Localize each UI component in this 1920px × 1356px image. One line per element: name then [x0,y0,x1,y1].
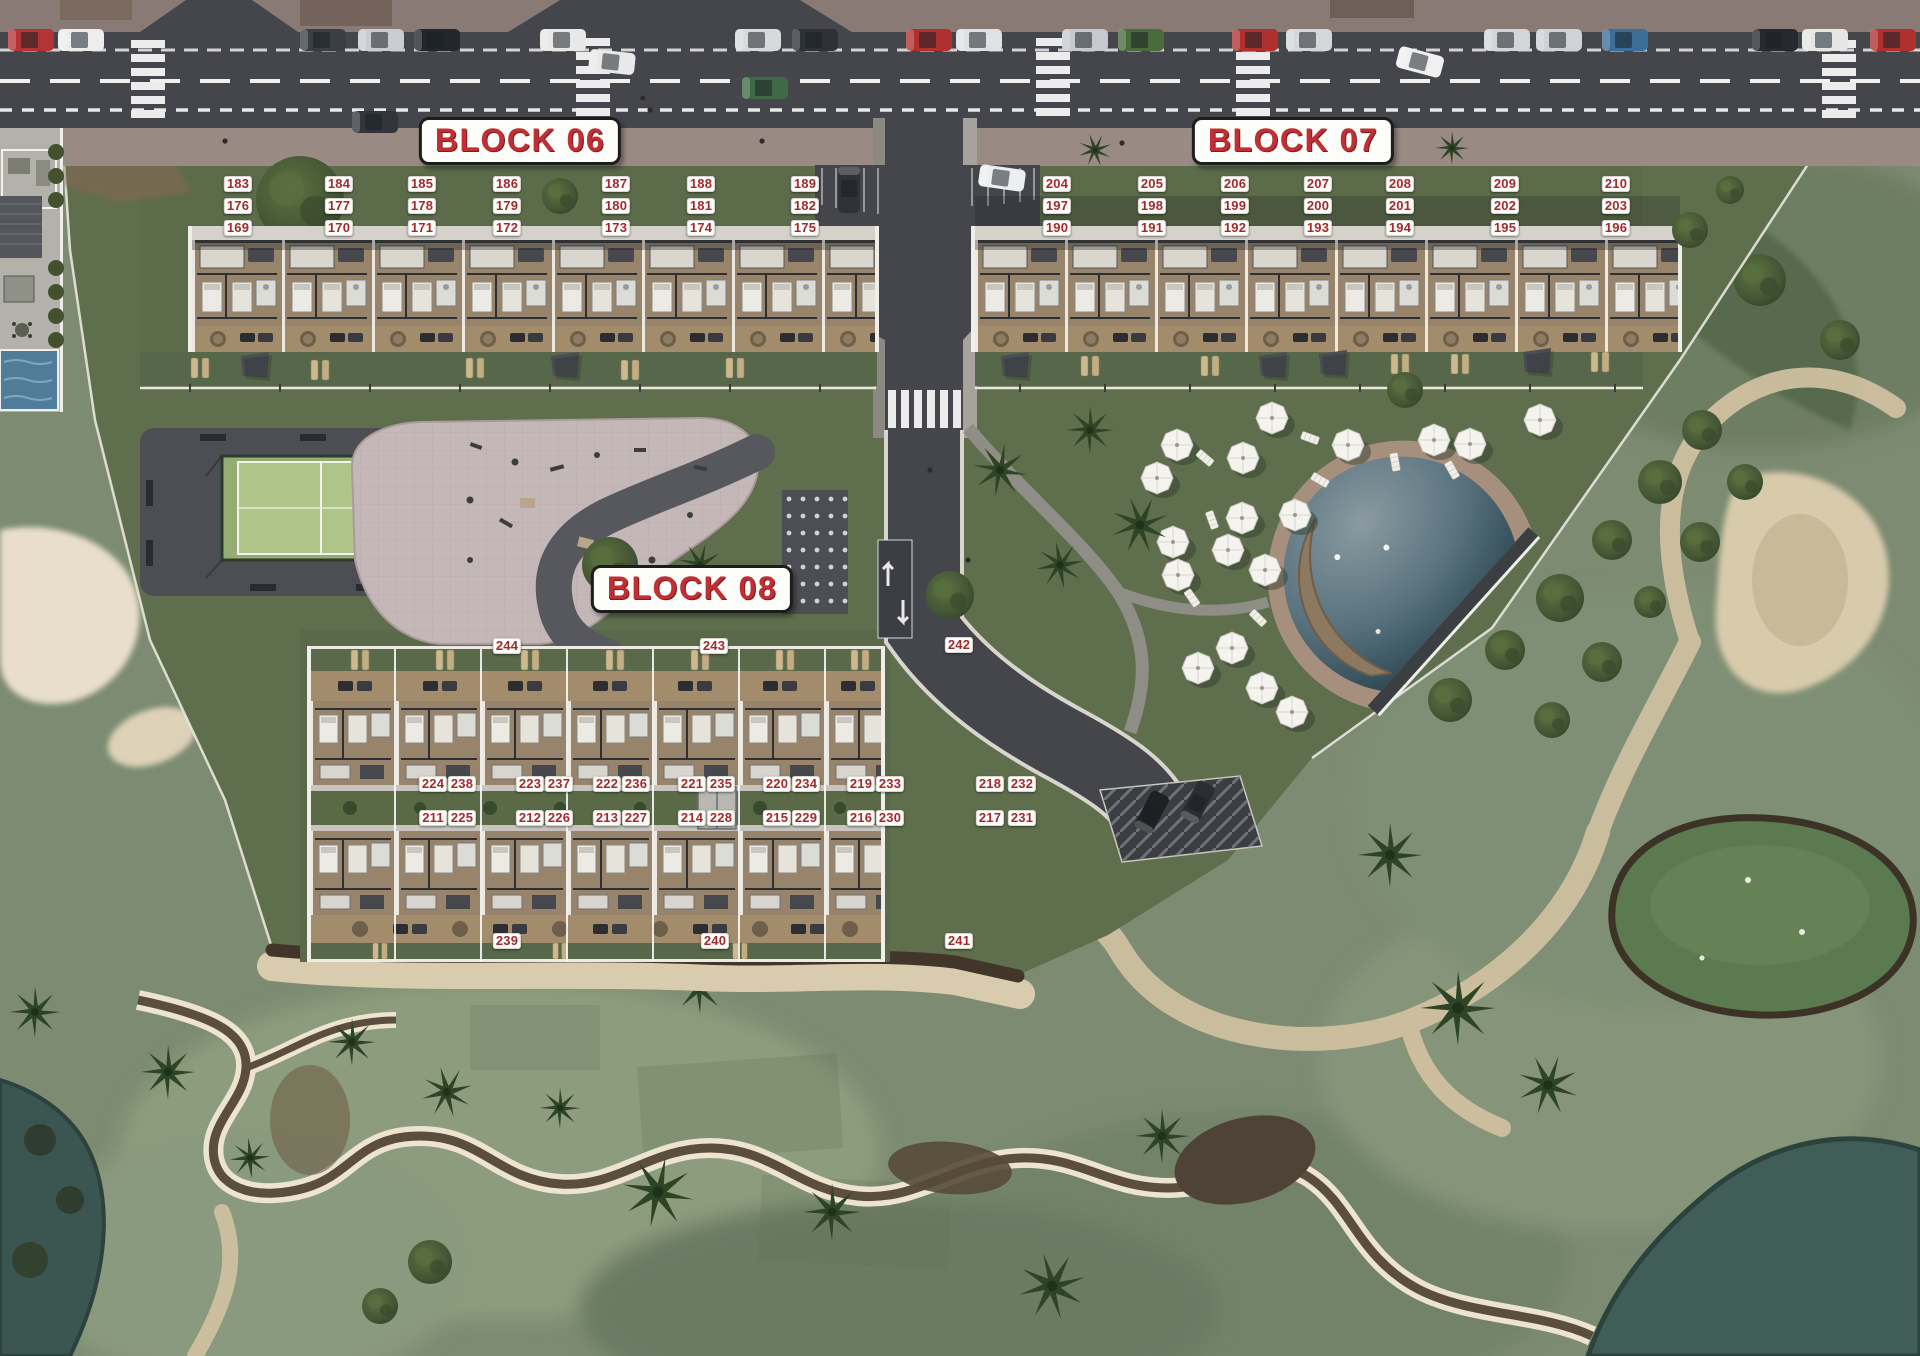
block-label-06: BLOCK 06 [419,117,621,165]
unit-badge-193[interactable]: 193 [1304,220,1332,236]
unit-badge-181[interactable]: 181 [687,198,715,214]
unit-badge-227[interactable]: 227 [622,810,650,826]
unit-badge-196[interactable]: 196 [1602,220,1630,236]
unit-badge-189[interactable]: 189 [791,176,819,192]
unit-badge-187[interactable]: 187 [602,176,630,192]
unit-badge-209[interactable]: 209 [1491,176,1519,192]
unit-badge-182[interactable]: 182 [791,198,819,214]
unit-badge-180[interactable]: 180 [602,198,630,214]
unit-badge-175[interactable]: 175 [791,220,819,236]
unit-badge-206[interactable]: 206 [1221,176,1249,192]
unit-badge-218[interactable]: 218 [976,776,1004,792]
unit-badge-228[interactable]: 228 [707,810,735,826]
unit-badge-203[interactable]: 203 [1602,198,1630,214]
unit-badge-234[interactable]: 234 [792,776,820,792]
unit-badge-184[interactable]: 184 [325,176,353,192]
unit-badge-229[interactable]: 229 [792,810,820,826]
unit-badge-224[interactable]: 224 [419,776,447,792]
unit-badge-208[interactable]: 208 [1386,176,1414,192]
unit-badge-197[interactable]: 197 [1043,198,1071,214]
unit-badge-171[interactable]: 171 [408,220,436,236]
unit-badge-235[interactable]: 235 [707,776,735,792]
unit-badge-213[interactable]: 213 [593,810,621,826]
unit-badge-192[interactable]: 192 [1221,220,1249,236]
unit-badge-210[interactable]: 210 [1602,176,1630,192]
unit-badge-169[interactable]: 169 [224,220,252,236]
unit-badge-223[interactable]: 223 [516,776,544,792]
unit-badge-205[interactable]: 205 [1138,176,1166,192]
unit-badge-231[interactable]: 231 [1008,810,1036,826]
unit-badge-198[interactable]: 198 [1138,198,1166,214]
unit-badge-186[interactable]: 186 [493,176,521,192]
unit-badge-176[interactable]: 176 [224,198,252,214]
unit-badge-236[interactable]: 236 [622,776,650,792]
unit-badge-217[interactable]: 217 [976,810,1004,826]
unit-badge-172[interactable]: 172 [493,220,521,236]
unit-badge-188[interactable]: 188 [687,176,715,192]
unit-badge-240[interactable]: 240 [701,933,729,949]
unit-badge-244[interactable]: 244 [493,638,521,654]
block-label-07: BLOCK 07 [1192,117,1394,165]
unit-badge-179[interactable]: 179 [493,198,521,214]
unit-badge-219[interactable]: 219 [847,776,875,792]
unit-badge-243[interactable]: 243 [700,638,728,654]
unit-badge-230[interactable]: 230 [876,810,904,826]
unit-badge-174[interactable]: 174 [687,220,715,236]
left-amenity-area [0,128,64,412]
unit-badge-191[interactable]: 191 [1138,220,1166,236]
unit-badge-211[interactable]: 211 [419,810,447,826]
unit-badge-215[interactable]: 215 [763,810,791,826]
masterplan-canvas: BLOCK 06BLOCK 07BLOCK 081831841851861871… [0,0,1920,1356]
unit-badge-190[interactable]: 190 [1043,220,1071,236]
unit-badge-177[interactable]: 177 [325,198,353,214]
unit-badge-242[interactable]: 242 [945,637,973,653]
unit-badge-200[interactable]: 200 [1304,198,1332,214]
unit-badge-185[interactable]: 185 [408,176,436,192]
unit-badge-225[interactable]: 225 [448,810,476,826]
unit-badge-222[interactable]: 222 [593,776,621,792]
unit-badge-212[interactable]: 212 [516,810,544,826]
unit-badge-237[interactable]: 237 [545,776,573,792]
unit-badge-233[interactable]: 233 [876,776,904,792]
block-label-08: BLOCK 08 [591,565,793,613]
unit-badge-201[interactable]: 201 [1386,198,1414,214]
unit-badge-199[interactable]: 199 [1221,198,1249,214]
unit-badge-173[interactable]: 173 [602,220,630,236]
siteplan-artwork [0,0,1920,1356]
block-08-building [307,646,885,962]
unit-badge-221[interactable]: 221 [678,776,706,792]
unit-badge-170[interactable]: 170 [325,220,353,236]
unit-badge-195[interactable]: 195 [1491,220,1519,236]
unit-badge-238[interactable]: 238 [448,776,476,792]
unit-badge-241[interactable]: 241 [945,933,973,949]
unit-badge-232[interactable]: 232 [1008,776,1036,792]
unit-badge-202[interactable]: 202 [1491,198,1519,214]
unit-badge-239[interactable]: 239 [493,933,521,949]
unit-badge-216[interactable]: 216 [847,810,875,826]
unit-badge-183[interactable]: 183 [224,176,252,192]
unit-badge-226[interactable]: 226 [545,810,573,826]
unit-badge-207[interactable]: 207 [1304,176,1332,192]
unit-badge-214[interactable]: 214 [678,810,706,826]
unit-badge-194[interactable]: 194 [1386,220,1414,236]
unit-badge-178[interactable]: 178 [408,198,436,214]
unit-badge-220[interactable]: 220 [763,776,791,792]
unit-badge-204[interactable]: 204 [1043,176,1071,192]
